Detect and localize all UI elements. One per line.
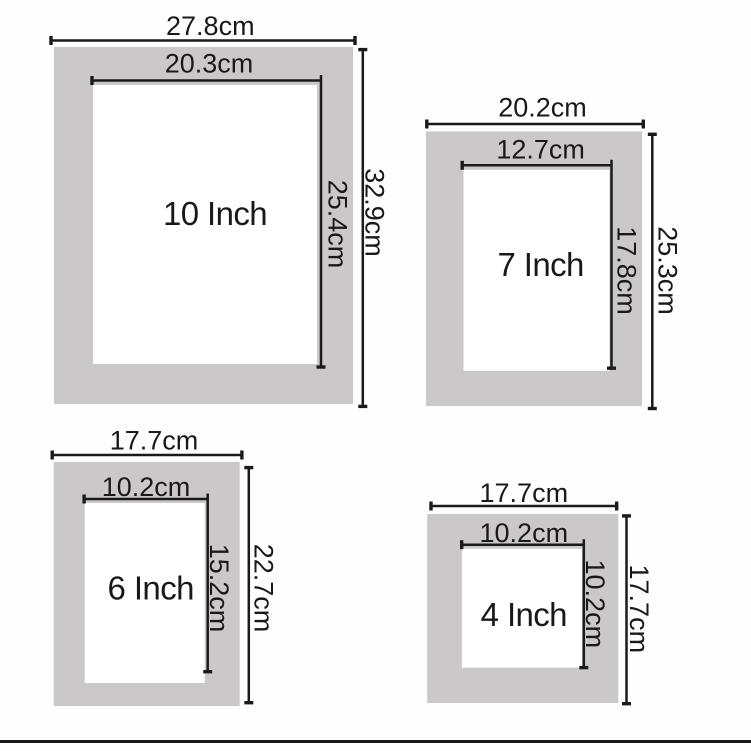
svg-text:32.9cm: 32.9cm <box>360 168 390 257</box>
svg-text:17.7cm: 17.7cm <box>624 565 654 654</box>
svg-text:10 Inch: 10 Inch <box>163 195 267 232</box>
svg-text:10.2cm: 10.2cm <box>102 472 191 502</box>
svg-text:12.7cm: 12.7cm <box>496 135 585 165</box>
svg-text:17.7cm: 17.7cm <box>110 426 199 456</box>
svg-text:17.7cm: 17.7cm <box>480 478 569 508</box>
svg-text:4 Inch: 4 Inch <box>481 596 567 633</box>
svg-text:10.2cm: 10.2cm <box>580 560 610 649</box>
svg-text:15.2cm: 15.2cm <box>204 544 234 633</box>
svg-text:7 Inch: 7 Inch <box>497 246 583 283</box>
svg-text:22.7cm: 22.7cm <box>249 544 279 633</box>
svg-text:20.2cm: 20.2cm <box>498 93 587 123</box>
svg-text:25.4cm: 25.4cm <box>322 180 352 269</box>
svg-text:20.3cm: 20.3cm <box>165 49 254 79</box>
svg-text:6 Inch: 6 Inch <box>108 570 194 607</box>
svg-text:17.8cm: 17.8cm <box>611 226 641 315</box>
svg-text:25.3cm: 25.3cm <box>652 226 682 315</box>
svg-text:10.2cm: 10.2cm <box>480 518 569 548</box>
svg-text:27.8cm: 27.8cm <box>166 11 255 41</box>
